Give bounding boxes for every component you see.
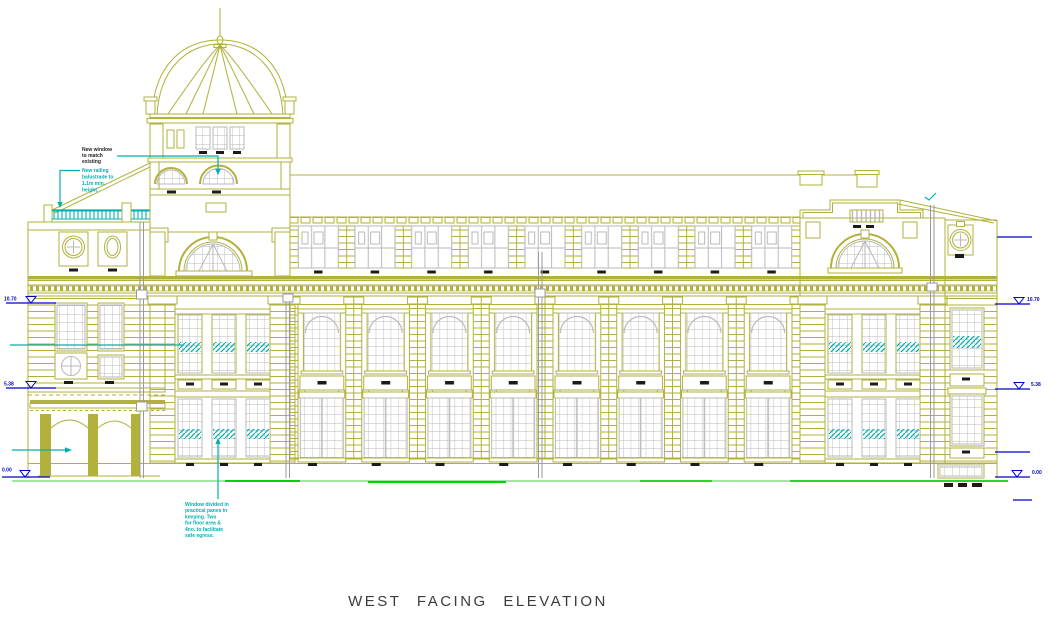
level-markers-right: 10.70 5.38 0.00: [995, 237, 1042, 500]
leader-arrow-icon: [65, 447, 72, 452]
main-bays: [290, 296, 800, 467]
dome-drum: [144, 97, 296, 162]
ground-line: [12, 481, 1008, 487]
oculus-window-right: [948, 222, 973, 259]
annotation-line: Window divided in: [185, 502, 229, 508]
central-block: [290, 175, 857, 467]
west-elevation-svg: 10.70 5.38 0.00 10.70 5.38 0.0: [0, 0, 1061, 621]
level-marker: 5.38: [995, 382, 1041, 389]
annotation-line: balustrade to: [82, 175, 113, 181]
tower-belfry: [150, 162, 290, 200]
clerestory-band: [290, 224, 800, 276]
level-marker: 0.00: [995, 470, 1042, 477]
level-value: 0.00: [1032, 470, 1042, 476]
annotation-line: for floor area &: [185, 521, 221, 527]
annotation-line: New railing: [82, 168, 109, 174]
roof-check-mark: [925, 193, 936, 200]
level-value: 5.38: [1031, 382, 1041, 388]
annotation-line: 4no. to facilitate: [185, 527, 223, 533]
level-marker: 10.70: [995, 297, 1040, 304]
tower-lunette-window: [176, 232, 252, 276]
right-end-wall: [938, 220, 997, 478]
annotation-line: existing: [82, 159, 101, 165]
new-balustrade: [45, 210, 155, 219]
level-value: 0.00: [2, 468, 12, 474]
annotation-line: height.: [82, 188, 99, 194]
annotation-line: practical panes in: [185, 508, 227, 514]
drawing-title: WEST FACING ELEVATION: [348, 593, 608, 610]
level-value: 10.70: [1027, 297, 1040, 303]
annotation-new-railing: New railing balustrade to 1.1m min. heig…: [57, 168, 113, 208]
left-wing: [28, 163, 165, 478]
tower-base: [148, 296, 297, 466]
level-value: 5.38: [4, 382, 14, 388]
tower: [144, 8, 297, 466]
elevation-drawing-canvas: 10.70 5.38 0.00 10.70 5.38 0.0: [0, 0, 1061, 621]
annotation-line: safe egress.: [185, 533, 215, 539]
pavilion-lunette-window: [828, 230, 902, 273]
pavilion-base: [798, 296, 947, 466]
level-value: 10.70: [4, 297, 17, 303]
dome: [147, 8, 293, 123]
annotation-line: 1.1m min.: [82, 181, 106, 187]
annotation-line: keeping. Two: [185, 514, 216, 520]
oculus-window-pair: [59, 232, 127, 272]
